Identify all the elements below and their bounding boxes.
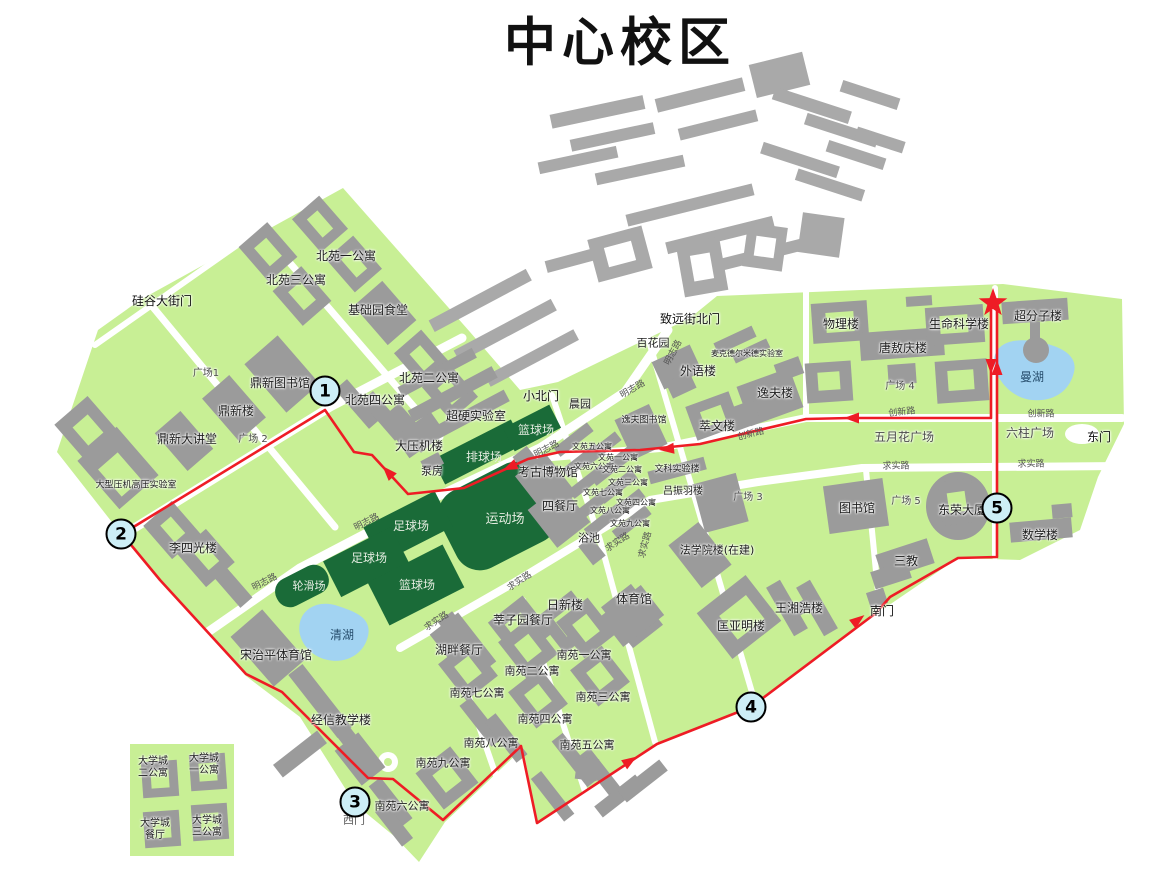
route-marker-3: 3 [340,787,371,818]
route-marker-5: 5 [982,493,1013,524]
campus-map: 中心校区 硅谷大街门致远街北门小北门东门南门西门北苑一公寓北苑三公寓基础园食堂北… [0,0,1162,872]
route-marker-2: 2 [106,519,137,550]
route-marker-1: 1 [310,376,341,407]
route-marker-4: 4 [736,692,767,723]
page-title: 中心校区 [504,1,736,76]
map-base-svg [0,0,1162,872]
